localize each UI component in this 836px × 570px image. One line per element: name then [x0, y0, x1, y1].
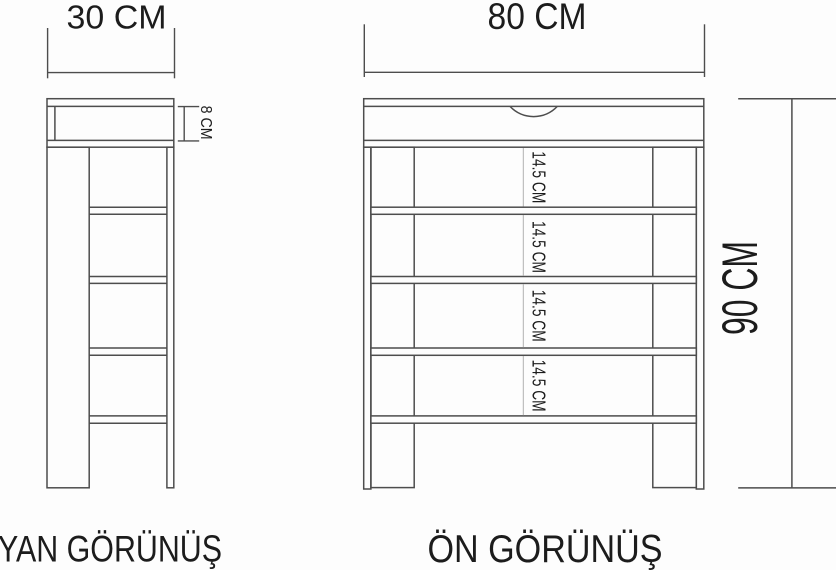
svg-text:80 CM: 80 CM — [488, 0, 587, 37]
svg-text:14.5 CM: 14.5 CM — [528, 221, 548, 273]
svg-text:ÖN GÖRÜNÜŞ: ÖN GÖRÜNÜŞ — [428, 528, 663, 570]
svg-text:14.5 CM: 14.5 CM — [528, 151, 548, 203]
svg-text:14.5 CM: 14.5 CM — [528, 360, 548, 412]
svg-text:8 CM: 8 CM — [197, 106, 214, 140]
svg-text:YAN GÖRÜNÜŞ: YAN GÖRÜNÜŞ — [0, 528, 222, 569]
svg-text:14.5 CM: 14.5 CM — [528, 290, 548, 342]
svg-text:90 CM: 90 CM — [712, 241, 768, 335]
svg-text:30 CM: 30 CM — [67, 0, 167, 36]
